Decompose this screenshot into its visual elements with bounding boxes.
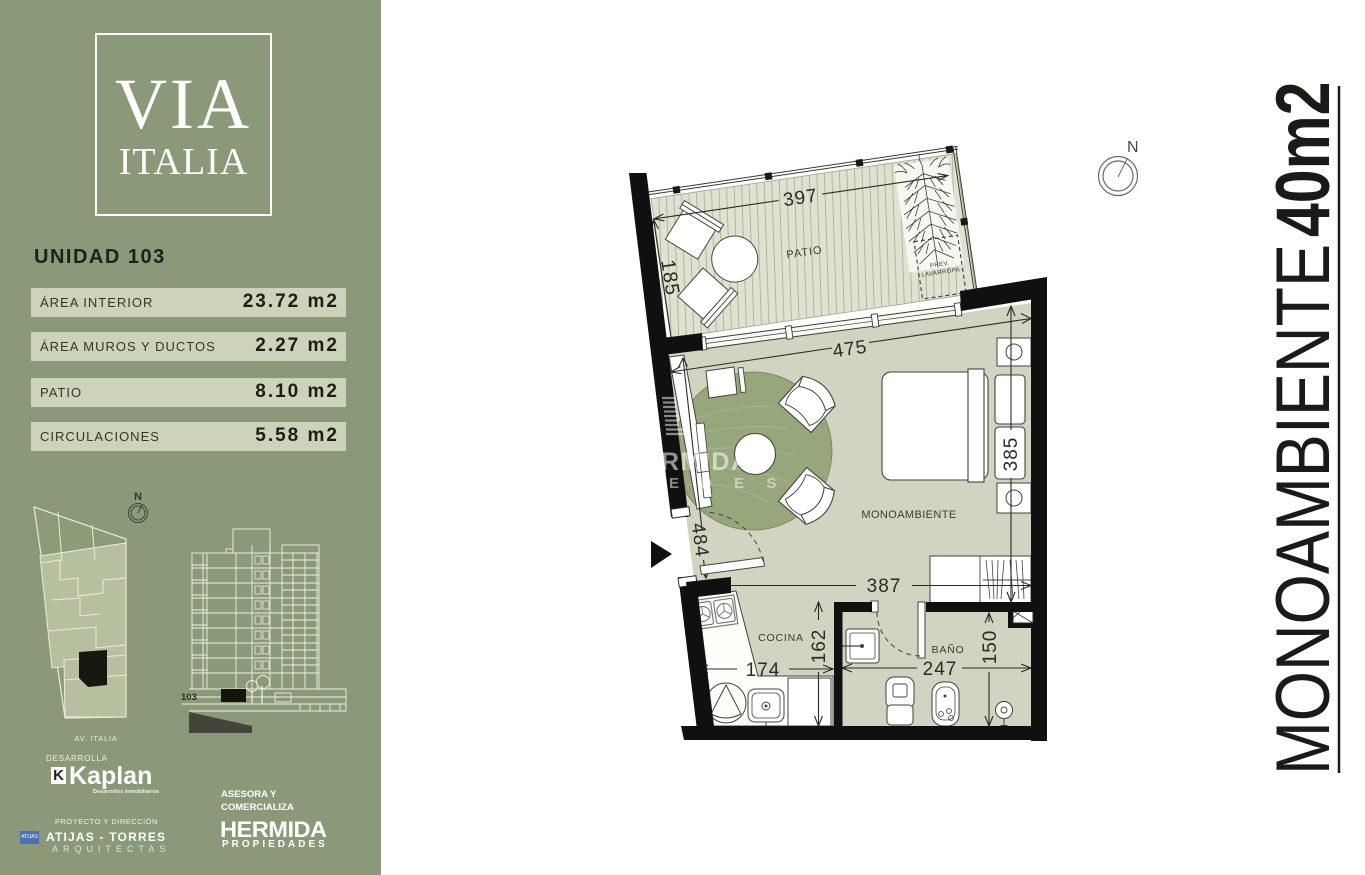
svg-text:162: 162 [809,629,830,664]
svg-text:174: 174 [746,660,781,681]
svg-text:150: 150 [980,630,1001,665]
svg-text:484: 484 [687,522,713,559]
svg-text:BAÑO: BAÑO [932,643,965,656]
svg-text:387: 387 [867,576,902,597]
svg-text:40m2: 40m2 [1261,82,1346,237]
svg-text:RMIDA: RMIDA [661,448,750,476]
svg-text:E D E S: E D E S [669,475,785,492]
svg-text:385: 385 [1001,437,1022,472]
svg-text:247: 247 [923,659,958,680]
svg-text:N: N [1127,139,1139,156]
svg-text:MONOAMBIENTE: MONOAMBIENTE [1260,244,1345,775]
svg-text:COCINA: COCINA [758,632,804,644]
svg-text:MONOAMBIENTE: MONOAMBIENTE [861,509,956,521]
